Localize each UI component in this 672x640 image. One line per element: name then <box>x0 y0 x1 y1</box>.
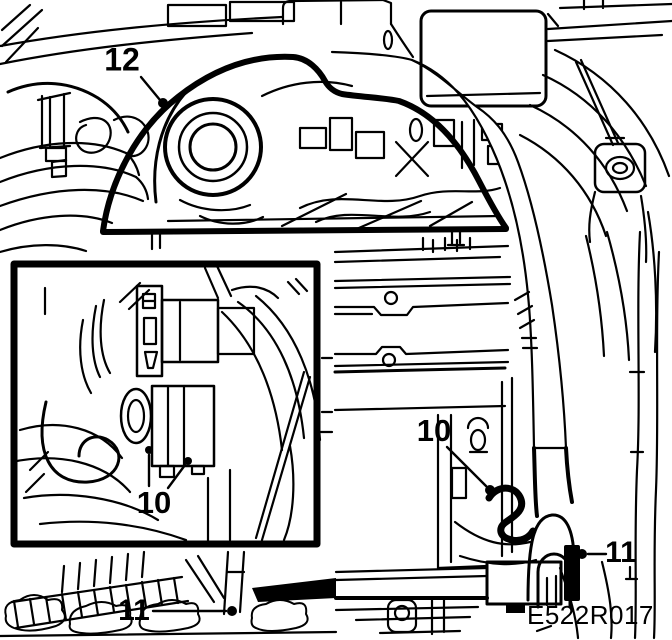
callout-dot-12 <box>158 98 168 108</box>
cowl-panel <box>0 0 672 64</box>
service-manual-figure: 12 10 10 11 11 E522R017 <box>0 0 672 640</box>
leader-line-12 <box>141 77 160 100</box>
figure-code: E522R017 <box>527 600 654 631</box>
callout-label-10-inset: 10 <box>137 485 171 521</box>
callout-dot-11-left <box>227 606 237 616</box>
engine-bay-line-art <box>0 0 672 640</box>
callout-label-11-left: 11 <box>118 594 150 628</box>
radiator-support-panel <box>320 238 536 568</box>
callout-dot-10-main <box>485 485 495 495</box>
throttle-body <box>165 99 263 224</box>
callout-label-11-right: 11 <box>605 536 637 570</box>
left-engine-parts <box>0 83 186 252</box>
underbody <box>0 552 336 636</box>
callout-label-10-main: 10 <box>417 413 451 449</box>
callout-label-12: 12 <box>104 42 140 79</box>
callout-dot-11-right <box>577 549 587 559</box>
resonator-box <box>421 11 546 106</box>
callout-dot-10-inset-a <box>145 446 153 454</box>
callout-dot-10-inset-b <box>184 457 192 465</box>
